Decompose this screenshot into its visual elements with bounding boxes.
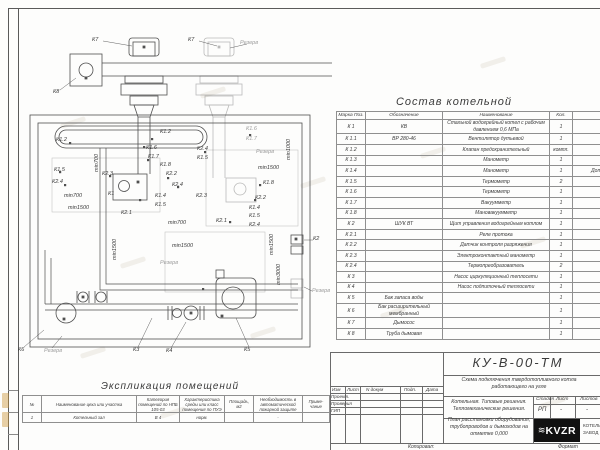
table-cell: К 1 [337,119,366,134]
table-row: К 2.3Электроконтактный манометр1Постав. … [337,251,600,262]
table-cell: Бак расширительный мембранный [366,303,443,318]
table-cell [225,413,254,423]
plan-label: К7 [92,38,98,44]
table-cell: К 1.2 [337,145,366,156]
table-row: К 1.6Термометр1Постав. по согла [337,187,600,198]
logo-wordmark: KVZR [545,425,576,437]
table-cell: Насос циркуляционный теплосети [443,272,550,283]
plan-label: К1 [108,192,114,198]
table-cell: Постав. с ШУК [573,251,600,262]
plan-label: min1000 [287,139,293,160]
table-cell: Мановакуумметр [443,208,550,219]
table-cell: 1 [550,272,573,283]
plan-label: К1.5 [155,203,166,209]
table-cell [303,413,330,423]
plan-label: К2.1 [216,219,227,225]
plan-label: К5 [244,348,250,354]
table-cell: Котельный зал [42,413,137,423]
table-cell: К 3 [337,272,366,283]
table-cell: 1 [550,303,573,318]
table-cell [573,155,600,166]
table-cell: Постав. по согла [573,219,600,230]
table-cell [443,293,550,304]
column-header: Марка Поз. [337,112,366,120]
sheets-label: Листов [580,397,597,402]
table-cell: 1 [550,198,573,209]
table-cell: Постав. по согла [573,318,600,329]
table-cell: Дымосос [366,318,443,329]
plan-label: К4 [166,349,172,355]
plan-label: К3 [133,348,139,354]
table-cell: К 8 [337,329,366,340]
table-cell [366,145,443,156]
table-cell: 1 [550,187,573,198]
table-cell [443,303,550,318]
table-row: К 1.1ВР 280-46Вентилятор дутьевой1 [337,134,600,145]
plan-label: min700 [64,194,82,200]
plan-label: К1.8 [263,181,274,187]
signature-row-label: ГИП [331,408,340,413]
table-cell: Вентилятор дутьевой [443,134,550,145]
equipment-table-title: Состав котельной [336,96,572,108]
column-header: Необходимость в автоматической пожарной … [254,396,303,413]
table-cell: 1 [550,229,573,240]
table-cell: К 4 [337,282,366,293]
table-cell: К 5 [337,293,366,304]
signature-row-label: Проверил [331,401,352,406]
project-name: Котельная. Типовые решения. Тепломеханич… [446,399,532,413]
table-row: К 2.4Термопреобразователь2Постав. с ШУК [337,261,600,272]
stage-label: Стадия [536,397,554,402]
table-cell [366,208,443,219]
table-cell: К 2.4 [337,261,366,272]
sheet-name: План расстановки оборудования, трубопров… [445,417,533,437]
table-cell [443,318,550,329]
table-cell: Постав. по согла [573,282,600,293]
plan-label: min1500 [113,239,119,260]
table-cell: ВР 280-46 [366,134,443,145]
sheets-value: - [586,407,588,413]
table-cell [366,240,443,251]
revision-header: Лист [347,387,359,392]
revision-header: N докум [366,387,383,392]
table-cell [366,272,443,283]
table-cell [443,329,550,340]
table-cell: 1 [550,119,573,134]
column-header: Кол. [550,112,573,120]
plan-label: К1.6 [246,127,257,133]
table-cell: К 2 [337,219,366,230]
equipment-table-section: Состав котельной Марка Поз.ОбозначениеНа… [336,96,600,340]
column-header: Обозначение [366,112,443,120]
plan-label: К1.4 [155,194,166,200]
plan-label: К2.2 [166,172,177,178]
stage-value: РП [538,407,546,413]
table-cell [366,176,443,187]
plan-label: min1500 [270,234,276,255]
table-cell: Термометр [443,176,550,187]
plan-label: Резерв [256,150,274,156]
plan-label: min700 [95,154,101,172]
table-cell [366,155,443,166]
table-row: К 8Труба дымовая1Постав. по согла [337,329,600,340]
copied-label: Копировал: [408,444,434,450]
table-row: К 1.7Вакуумметр1Постав. по согла [337,198,600,209]
revision-header: Дата [426,387,438,392]
table-row: К 1.5Термометр2 [337,176,600,187]
table-cell: Постав. по согла [573,272,600,283]
plan-label: К7 [188,38,194,44]
table-cell: В 4 [137,413,180,423]
column-header: Площадь, м2 [225,396,254,413]
table-cell: 1 [550,282,573,293]
column-header: Приме- чание [303,396,330,413]
plan-label: К2.2 [255,196,266,202]
table-cell: К 2.3 [337,251,366,262]
column-header: Наименование цеха или участка [42,396,137,413]
column-header: Категория помещений по НПБ 105-03 [137,396,180,413]
table-row: К 1.8Мановакуумметр1Постав. по согла [337,208,600,219]
plan-label: К1.2 [56,138,67,144]
table-cell [366,166,443,177]
table-row: К 5Бак запаса воды1Постав. по согла [337,293,600,304]
plan-label: К2.4 [197,147,208,153]
table-cell: Постав. по согла [573,303,600,318]
plan-label: К2 [313,237,319,243]
table-cell: 1 [23,413,42,423]
table-cell [366,251,443,262]
table-row: К 6Бак расширительный мембранный1Постав.… [337,303,600,318]
table-cell: 1 [550,134,573,145]
table-cell: 1 [550,166,573,177]
table-cell: Термопреобразователь [443,261,550,272]
plan-label: min1500 [172,244,193,250]
table-cell: К 1.1 [337,134,366,145]
column-header: № [23,396,42,413]
table-cell: Постав. по согла [573,187,600,198]
table-cell: Щит управления водогрейным котлом [443,219,550,230]
logo-side-text: КОТЕЛЬН ЗАВОД Р [583,423,600,437]
table-cell: ШУК ВТ [366,219,443,230]
table-cell: Термометр [443,187,550,198]
column-header: Примечание [573,112,600,120]
table-cell: 2 [550,261,573,272]
equipment-table: Марка Поз.ОбозначениеНаименованиеКол.При… [336,111,600,340]
table-cell: К 2.1 [337,229,366,240]
plan-label: К2.4 [172,183,183,189]
table-row: 1Котельный залВ 4норм.- [23,413,330,423]
table-row: К 1.3Манометр1 [337,155,600,166]
plan-label: min1500 [258,166,279,172]
plan-label: Резерв [240,41,258,47]
table-cell: К 2.2 [337,240,366,251]
table-cell: К 7 [337,318,366,329]
table-cell: Электроконтактный манометр [443,251,550,262]
table-cell: Манометр [443,166,550,177]
room-explication-title: Экспликация помещений [22,381,318,392]
table-cell: 2 [550,176,573,187]
drawing-sheet: { "colors": { "line": "#4f4f4f", "faded_… [0,0,600,450]
table-row: К 4Насос подпиточный теплосети1Постав. п… [337,282,600,293]
revision-header: Изм [332,387,341,392]
plan-label: К2.3 [102,172,113,178]
plan-label: К2.1 [121,211,132,217]
table-row: К 1.4Манометр1Допускается зам. поз. К 2.… [337,166,600,177]
table-cell: Вакуумметр [443,198,550,209]
signature-row-label: Проект. [331,394,349,399]
table-cell [573,176,600,187]
plan-label: К1.6 [146,146,157,152]
plan-label: К1.7 [148,155,159,161]
table-cell: 1 [550,329,573,340]
plan-label: К1.8 [160,163,171,169]
column-header: Характеристика среды или класс помещения… [180,396,225,413]
plan-label: min700 [168,221,186,227]
table-cell: - [254,413,303,423]
plan-label: К2.3 [196,194,207,200]
table-cell: К 1.3 [337,155,366,166]
plan-label: К1.7 [246,137,257,143]
table-cell [573,134,600,145]
room-explication-table: №Наименование цеха или участкаКатегория … [22,395,330,423]
room-explication-section: Экспликация помещений №Наименование цеха… [22,381,318,423]
table-cell: К 1.7 [337,198,366,209]
plan-label: Резерв [312,289,330,295]
table-cell: К 1.8 [337,208,366,219]
table-cell: 1 [550,240,573,251]
format-label: Формат [558,444,578,450]
table-cell: 1 [550,318,573,329]
table-cell: Постав. по согла [573,293,600,304]
plan-label: К8 [53,90,59,96]
table-cell: К 1.6 [337,187,366,198]
plan-label: К1.5 [197,156,208,162]
table-cell: Постав. по согла [573,208,600,219]
table-cell: Датчик контроля разряжения [443,240,550,251]
table-cell: норм. [180,413,225,423]
table-cell: Постав. с ШУК [573,240,600,251]
kvzr-logo: ≋ KVZR [534,419,580,442]
table-cell: Стальной водогрейный котел с рабочим дав… [443,119,550,134]
plan-label: min1500 [68,206,89,212]
logo-zigzag-icon: ≋ [538,426,545,435]
table-cell: Манометр [443,155,550,166]
table-cell: К 1.4 [337,166,366,177]
table-cell [573,145,600,156]
table-cell: Труба дымовая [366,329,443,340]
plan-label: К2.4 [249,223,260,229]
table-cell: 1 [550,219,573,230]
table-cell: компл. [550,145,573,156]
plan-label: Резерв [160,261,178,267]
plan-label: К1.4 [249,206,260,212]
table-cell [366,198,443,209]
table-cell: Реле протока [443,229,550,240]
table-cell: К 1.5 [337,176,366,187]
document-number: КУ-В-00-ТМ [448,355,588,370]
plan-label: К1.2 [160,130,171,136]
table-cell [366,229,443,240]
table-cell: Допускается зам. поз. К 2.3 [573,166,600,177]
sheet-value: - [560,407,562,413]
plan-label: Резерв [44,349,62,355]
table-cell: 1 [550,251,573,262]
plan-label: К1.5 [54,168,65,174]
table-cell: К 6 [337,303,366,318]
table-cell: Постав. по согла [573,198,600,209]
table-row: К 1.2Клапан предохранительныйкомпл. [337,145,600,156]
table-cell: 1 [550,293,573,304]
table-row: К 2.1Реле протока1Постав. с ШУК [337,229,600,240]
table-cell: Постав. с ШУК [573,261,600,272]
table-cell: КВ [366,119,443,134]
table-cell: Насос подпиточный теплосети [443,282,550,293]
table-cell: 1 [550,155,573,166]
table-cell: Постав. по согла [573,329,600,340]
table-row: К 1КВСтальной водогрейный котел с рабочи… [337,119,600,134]
plan-label: min3000 [277,264,283,285]
column-header: Наименование [443,112,550,120]
plan-label: К1.5 [249,214,260,220]
table-cell: Постав. с ШУК [573,229,600,240]
table-cell [366,261,443,272]
table-row: К 2.2Датчик контроля разряжения1Постав. … [337,240,600,251]
table-cell: 1 [550,208,573,219]
table-row: К 2ШУК ВТЩит управления водогрейным котл… [337,219,600,230]
plan-label: К6 [18,348,24,354]
table-cell [573,119,600,134]
table-cell: Клапан предохранительный [443,145,550,156]
scheme-title: Схема подключения твердотопливного котла… [446,377,592,391]
table-cell [366,282,443,293]
table-cell [366,187,443,198]
plan-label: К2.4 [52,180,63,186]
table-row: К 3Насос циркуляционный теплосети1Постав… [337,272,600,283]
revision-header: Подп. [404,387,416,392]
table-row: К 7Дымосос1Постав. по согла [337,318,600,329]
table-cell: Бак запаса воды [366,293,443,304]
sheet-label: Лист [556,397,568,402]
